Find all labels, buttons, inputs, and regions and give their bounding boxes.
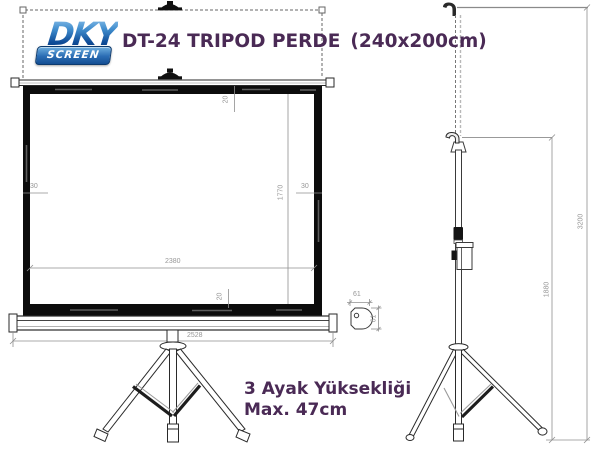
tripod-side-foot-left	[406, 435, 414, 441]
housing-endcap-left	[9, 314, 17, 332]
tripod-side-center-pole	[456, 350, 462, 425]
leg-height-note-line2: Max. 47cm	[244, 400, 411, 421]
dim-top-border-label: 20	[222, 90, 231, 110]
hook-rest-icon	[446, 133, 459, 144]
pull-handle-icon	[158, 69, 182, 80]
top-slat-endcap-right	[326, 78, 334, 87]
screen-viewing-area	[30, 94, 314, 304]
tripod-leg-right	[176, 349, 246, 432]
dky-screen-logo: DKY SCREEN	[30, 15, 130, 69]
dim-right-border-label: 30	[301, 182, 309, 191]
logo-text-screen: SCREEN	[35, 46, 112, 65]
corner-marker-left-icon	[20, 7, 26, 13]
dim-bottom-border-label: 20	[216, 287, 225, 307]
dim-total-width-label: 2528	[187, 331, 203, 340]
leg-height-note: 3 Ayak Yüksekliği Max. 47cm	[244, 379, 411, 421]
tripod-front	[94, 330, 250, 442]
hook-top-icon	[443, 3, 456, 17]
dim-total-height-label: 3200	[577, 210, 586, 234]
product-size: (240x200cm)	[350, 31, 486, 52]
bracket-body	[457, 248, 472, 270]
housing-bar	[14, 316, 332, 330]
pull-handle-top-icon	[158, 1, 182, 10]
pole-bracket	[167, 330, 178, 342]
top-slat-endcap-left	[11, 78, 19, 87]
product-model: DT-24 TRIPOD PERDE	[122, 31, 340, 52]
dim-viewing-width-label: 2380	[165, 257, 181, 266]
leg-height-note-line1: 3 Ayak Yüksekliği	[244, 379, 411, 400]
foot-hole	[354, 313, 358, 317]
housing-endcap-right	[329, 314, 337, 332]
dim-detail-width-label: 61	[353, 290, 361, 299]
tripod-braces-side	[444, 384, 493, 417]
tripod-side	[406, 344, 547, 441]
bracket-knob	[452, 251, 457, 261]
corner-marker-right-icon	[319, 7, 325, 13]
pole-clamp-knob	[454, 227, 464, 240]
bracket-lid	[456, 243, 473, 248]
dim-left-border-label: 30	[30, 182, 38, 191]
tripod-foot-right	[236, 430, 250, 443]
tripod-hub-side	[449, 344, 468, 351]
tripod-center-foot	[168, 424, 179, 442]
dim-viewing-height-label: 1770	[277, 181, 286, 205]
tripod-side-center-foot	[454, 424, 464, 441]
tripod-side-leg-right	[460, 350, 544, 432]
side-view	[406, 3, 590, 444]
dim-case-height-label: 1880	[543, 278, 552, 302]
dim-detail-height-label: 61	[370, 311, 379, 327]
tripod-side-leg-left	[409, 350, 458, 438]
product-title: DT-24 TRIPOD PERDE(240x200cm)	[122, 31, 487, 52]
tripod-side-foot-right	[538, 428, 547, 435]
